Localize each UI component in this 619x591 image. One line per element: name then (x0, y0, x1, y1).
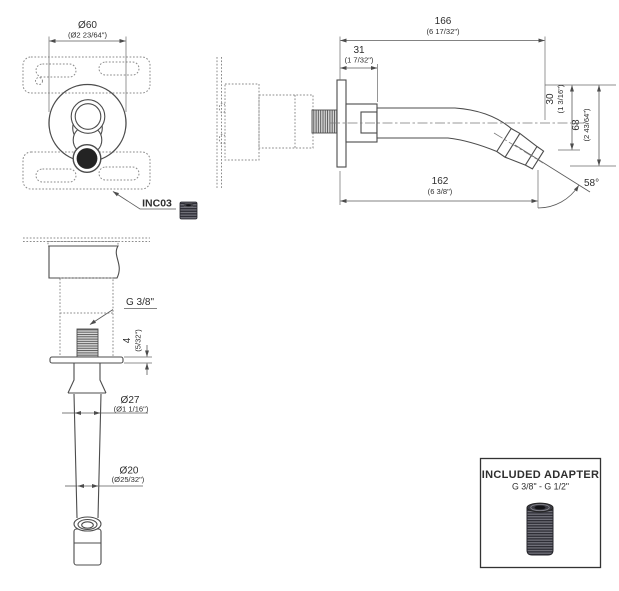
spout-body-section (49, 246, 119, 278)
dim-30-mm: 30 (545, 93, 556, 105)
screw-bump (219, 103, 225, 113)
dim-68-in: (2 43/64") (582, 108, 591, 142)
wall-flange (337, 80, 346, 167)
dim-30-in: (1 3/16") (556, 84, 565, 113)
spout-base-ring (71, 100, 105, 134)
product-code: INC03 (142, 198, 172, 210)
screw-bump (219, 134, 225, 144)
bracket-slot (99, 62, 139, 75)
spout-neck (68, 363, 106, 393)
dim-30: 30 (1 3/16") (545, 84, 616, 150)
product-code-label: INC03 (113, 192, 197, 220)
dim-31-mm: 31 (353, 45, 365, 56)
bracket-hole (36, 78, 43, 85)
spout-outlet (77, 148, 98, 169)
dim-60: Ø60 (Ø2 23/64") (49, 20, 126, 112)
dim-27-in: (Ø1 1/16") (114, 405, 149, 414)
thread-callout: G 3/8" (90, 297, 157, 325)
included-adapter-box: INCLUDED ADAPTER G 3/8" - G 1/2" (481, 459, 601, 568)
thread-nipple (312, 110, 337, 133)
thread-label: G 3/8" (126, 297, 154, 308)
dim-4: 4 (5/32") (122, 329, 152, 375)
dim-4-mm: 4 (122, 337, 133, 343)
dim-20: Ø20 (Ø25/32") (65, 466, 145, 487)
angle-label: 58° (584, 178, 599, 189)
thread-nipple (77, 329, 98, 357)
bracket-slot (36, 64, 76, 77)
dim-162-mm: 162 (432, 176, 449, 187)
spout-tube (377, 108, 544, 169)
dim-166-mm: 166 (435, 16, 452, 27)
dim-27: Ø27 (Ø1 1/16") (62, 395, 149, 414)
front-view: Ø60 (Ø2 23/64") INC03 (23, 20, 197, 219)
bracket-slot (36, 169, 76, 182)
bottom-view: G 3/8" 4 (5/32") Ø27 (Ø1 1/16") Ø20 (23, 238, 157, 565)
adapter-box-title: INCLUDED ADAPTER (482, 469, 599, 481)
dim-68-mm: 68 (571, 119, 582, 131)
side-view: 166 (6 17/32") 31 (1 7/32") 162 (6 3/8")… (217, 16, 616, 208)
dim-60-in: (Ø2 23/64") (68, 31, 107, 40)
bracket-slot (99, 167, 139, 180)
dim-31-in: (1 7/32") (345, 56, 374, 65)
aerator (74, 517, 101, 565)
dim-4-in: (5/32") (134, 329, 143, 352)
thread-adapter-icon (527, 503, 553, 555)
dim-60-mm: Ø60 (78, 20, 97, 31)
dim-162: 162 (6 3/8") (340, 170, 538, 208)
dim-162-in: (6 3/8") (428, 187, 453, 196)
technical-drawing-page: Ø60 (Ø2 23/64") INC03 (0, 0, 619, 591)
dim-68: 68 (2 43/64") (570, 86, 616, 167)
dim-20-in: (Ø25/32") (112, 475, 145, 484)
escutcheon-edge (48, 242, 118, 247)
roughin-cylinder (259, 95, 313, 148)
dim-166-in: (6 17/32") (426, 27, 460, 36)
adapter-box-subtitle: G 3/8" - G 1/2" (512, 482, 569, 492)
thread-adapter-mini-icon (180, 202, 197, 219)
roughin-body (225, 84, 259, 160)
spout-technical-drawing: Ø60 (Ø2 23/64") INC03 (0, 0, 619, 591)
wall-flange-edge (50, 357, 123, 363)
